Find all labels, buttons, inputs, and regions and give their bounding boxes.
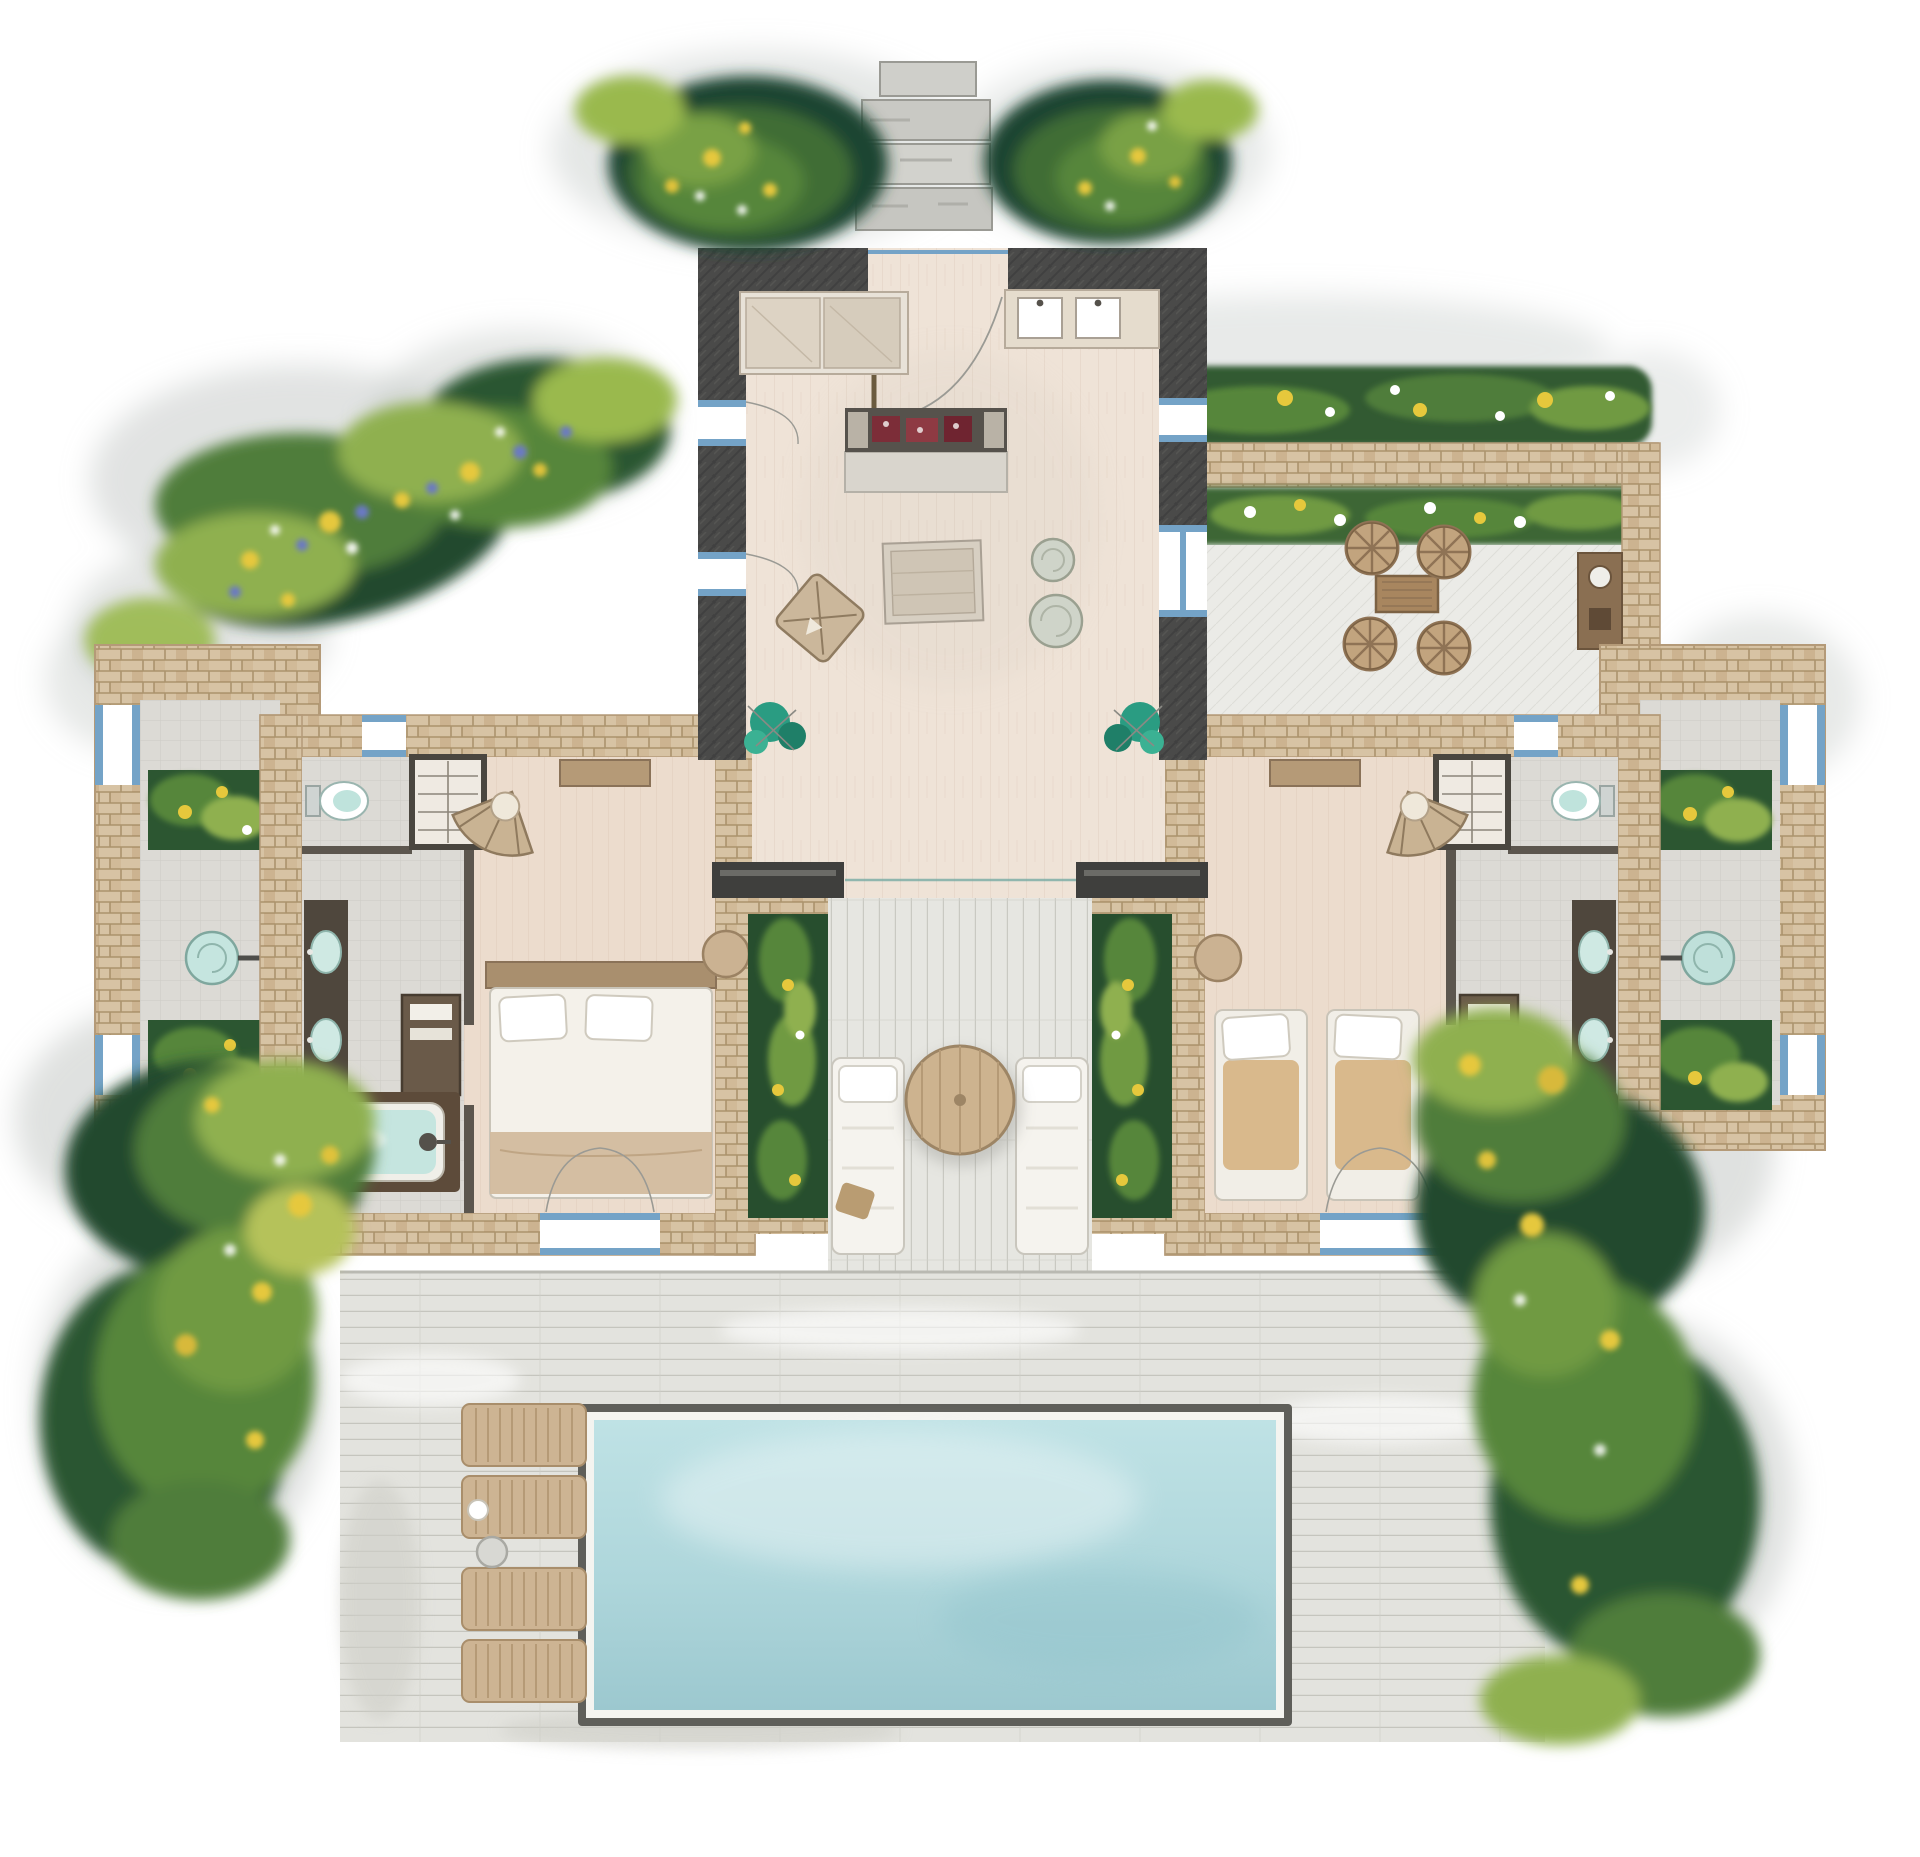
terrace-door (1159, 525, 1207, 617)
terrace-paving (1188, 545, 1622, 717)
planter (148, 770, 269, 850)
wall (1159, 248, 1207, 760)
sun-deck (340, 1272, 1545, 1750)
pillow (585, 995, 652, 1041)
side-table (1030, 595, 1082, 647)
bed (486, 962, 716, 1198)
garden-door (1514, 715, 1558, 757)
terrace-flower-bed-low (1188, 487, 1650, 545)
console-desk (560, 760, 650, 786)
sun-lounger (462, 1568, 586, 1630)
pillow (499, 994, 567, 1041)
window (1780, 705, 1825, 785)
entrance-bush-left (575, 76, 888, 252)
central-courtyard (748, 898, 1172, 1290)
kitchenette (1005, 290, 1159, 348)
planter (1652, 1020, 1772, 1110)
window (95, 705, 140, 785)
dining-chair (1418, 622, 1470, 674)
sun-lounger (462, 1640, 586, 1702)
decor-console (845, 408, 1007, 492)
courtyard-planter-right (1092, 898, 1172, 1234)
floor-plan-canvas: Watercolor floor plan of a two-bedroom p… (0, 0, 1920, 1857)
console-desk (1270, 760, 1360, 786)
wall (260, 715, 755, 757)
wall (698, 248, 746, 760)
sliding-door (712, 862, 844, 898)
courtyard-daybed (832, 1058, 904, 1254)
side-table (477, 1537, 507, 1567)
wall (1165, 715, 1660, 757)
courtyard-planter-left (748, 898, 828, 1234)
sliding-door (1076, 862, 1208, 898)
sun-lounger (462, 1404, 586, 1466)
terrace-wall (1188, 443, 1658, 487)
covered-table (883, 540, 984, 623)
planter (1652, 770, 1772, 850)
window (1780, 1035, 1825, 1095)
courtyard-daybed (1016, 1058, 1088, 1254)
toilet (1552, 782, 1614, 820)
dining-chair (1346, 522, 1398, 574)
entrance (575, 62, 1258, 252)
entrance-bush-right (984, 80, 1258, 244)
pouf (1195, 935, 1241, 981)
sofa-bench (740, 292, 908, 374)
garden-door (362, 715, 406, 757)
window (1159, 398, 1207, 442)
outdoor-kitchen (1578, 553, 1622, 649)
lounge-chair (1215, 1010, 1307, 1200)
side-table (1032, 539, 1074, 581)
dining-chair (1418, 526, 1470, 578)
living-pavilion (698, 248, 1207, 902)
bath-cabinet (402, 995, 460, 1095)
headboard (486, 962, 716, 988)
towel-roll (468, 1500, 488, 1520)
villa-floor-plan: Watercolor floor plan of a two-bedroom p… (0, 0, 1920, 1857)
pouf (703, 931, 749, 977)
swimming-pool (578, 1404, 1292, 1726)
blanket (490, 1132, 712, 1194)
toilet (306, 782, 368, 820)
garden-southwest (40, 1060, 375, 1600)
dining-chair (1344, 618, 1396, 670)
